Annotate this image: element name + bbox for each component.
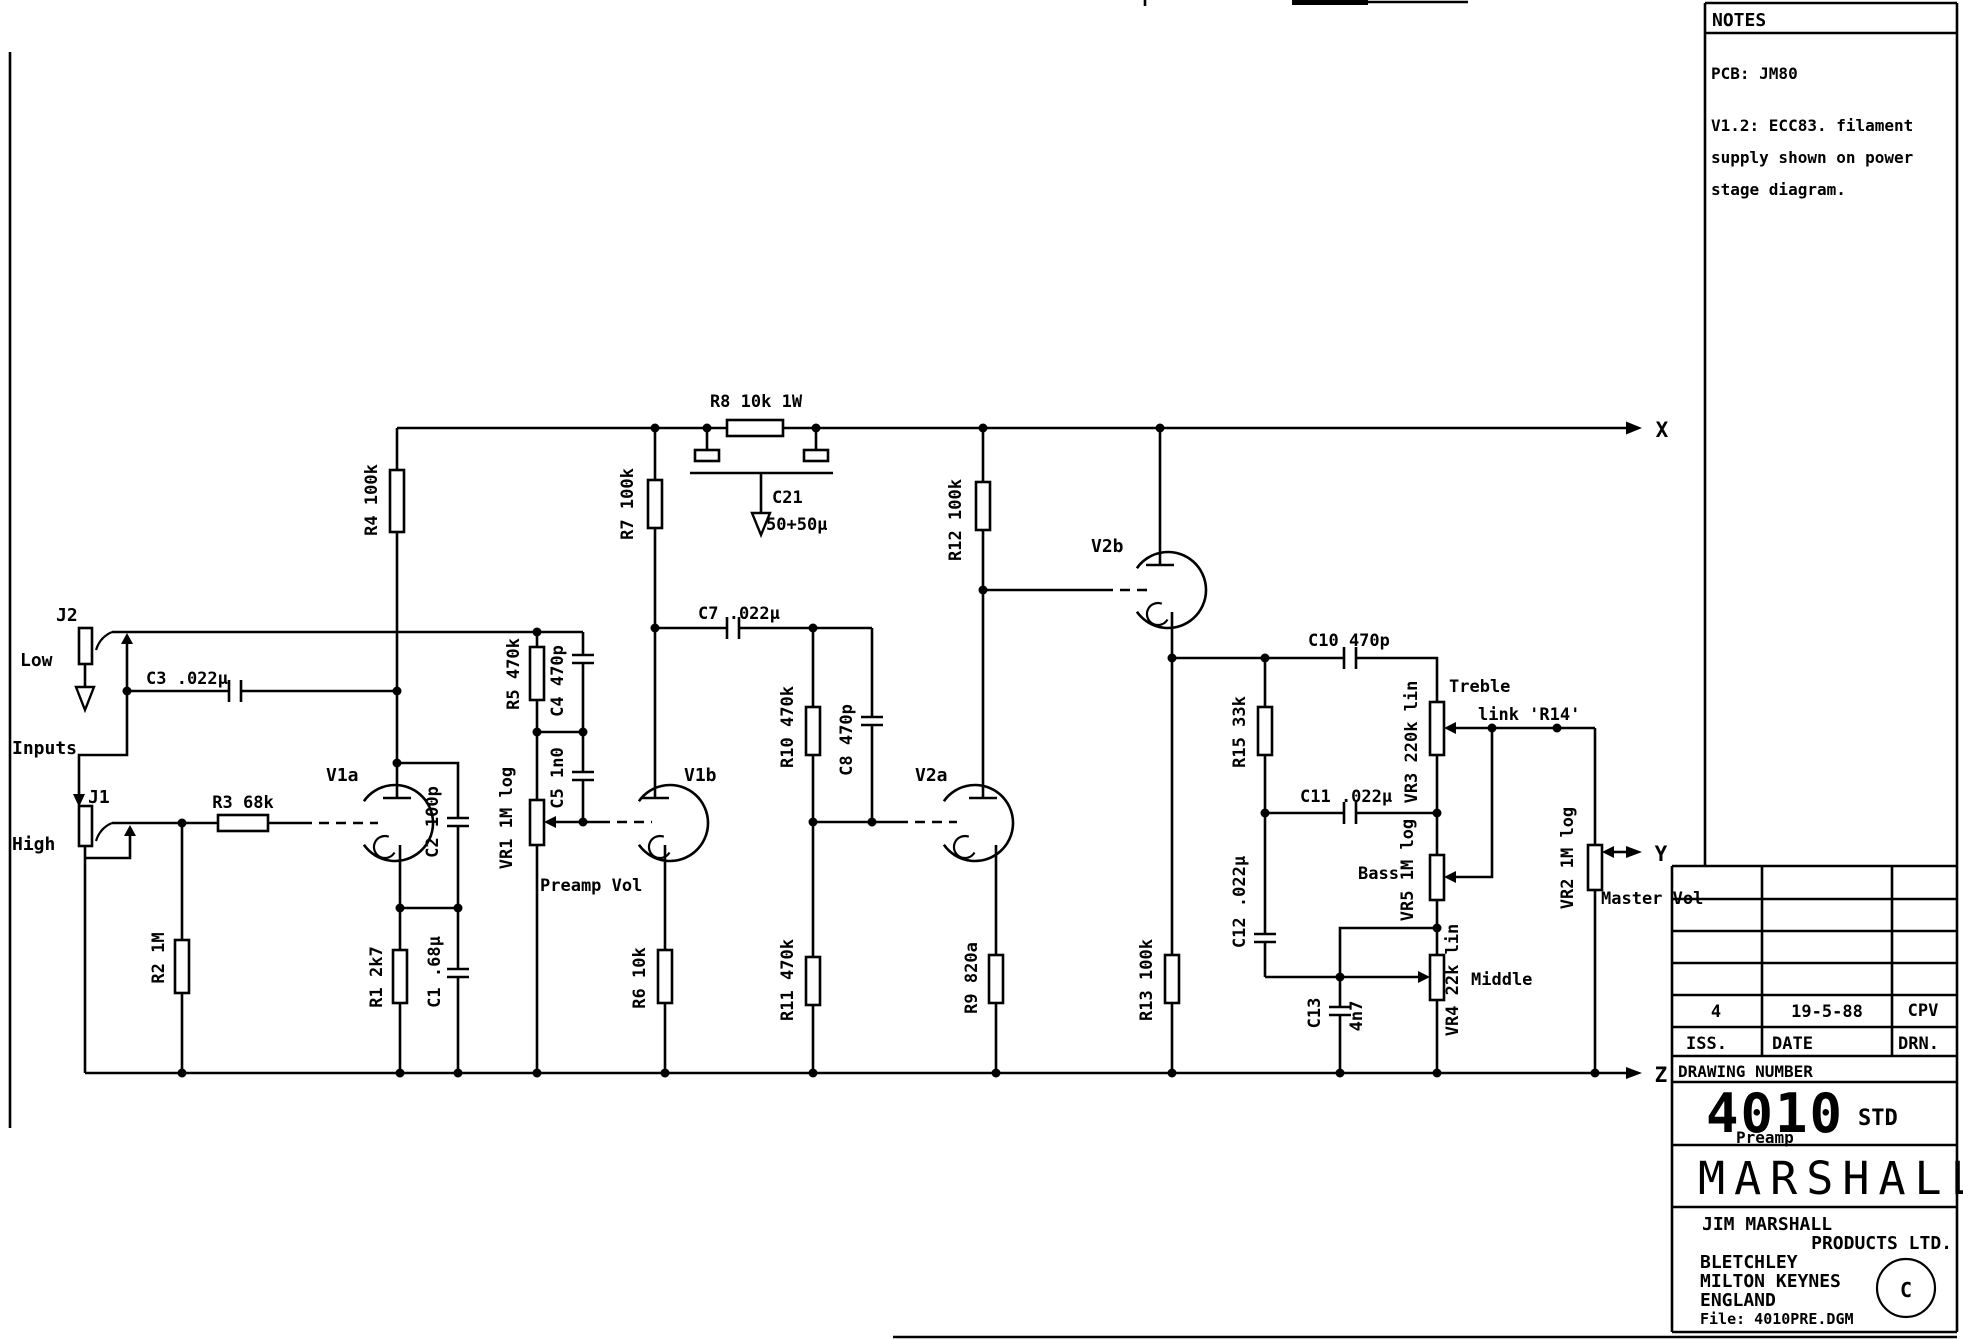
note-line: stage diagram. [1711, 180, 1846, 199]
capacitor-c3: C3 .022µ [127, 669, 397, 702]
label-r13: R13 100k [1137, 939, 1157, 1021]
cathode-icon [954, 836, 975, 858]
capacitor-c21: C21 50+50µ [690, 428, 833, 535]
label-j2: J2 [56, 605, 78, 626]
cathode-icon [1147, 603, 1168, 625]
label-r10: R10 470k [778, 686, 798, 768]
label-c3: C3 .022µ [146, 669, 228, 689]
label-c8: C8 470p [837, 704, 857, 776]
label-c12: C12 .022µ [1230, 856, 1250, 948]
resistor-r8: R8 10k 1W [710, 392, 803, 436]
label-v1a: V1a [326, 765, 359, 786]
label-c7: C7 .022µ [698, 604, 780, 624]
company-line: JIM MARSHALL [1702, 1214, 1832, 1235]
tone-stack: C10 470p R15 33k C11 .022µ VR3 220k lin … [1172, 631, 1595, 1073]
wiper-arrow-icon [1602, 846, 1614, 858]
issue-date: 19-5-88 [1791, 1002, 1863, 1022]
resistor-r2: R2 1M [149, 823, 189, 1073]
note-line: PCB: JM80 [1711, 64, 1798, 83]
date-label: DATE [1772, 1034, 1813, 1054]
label-r4: R4 100k [362, 464, 382, 536]
wiper-arrow-icon [1418, 971, 1430, 983]
drawing-variant: STD [1858, 1106, 1898, 1131]
wiper-arrow-icon [1444, 871, 1456, 883]
brand-logo: MARSHALL [1698, 1152, 1963, 1205]
cathode-icon [649, 836, 670, 858]
tube-v2a: V2a [915, 530, 1013, 955]
node-x-label: X [1656, 418, 1669, 442]
label-r1: R1 2k7 [367, 946, 387, 1007]
preamp-volume-network: R5 470k C4 470p C5 1n0 VR1 1M log Preamp… [497, 632, 652, 1073]
label-v2b: V2b [1091, 536, 1124, 557]
label-link-r14: link 'R14' [1478, 705, 1580, 725]
label-bass: Bass [1358, 864, 1399, 884]
drawing-number-label: DRAWING NUMBER [1678, 1062, 1813, 1081]
ground-rail: Z [85, 1063, 1667, 1087]
iss-label: ISS. [1686, 1034, 1727, 1054]
label-c11: C11 .022µ [1300, 787, 1392, 807]
switch-contact-icon [124, 825, 136, 836]
label-master-vol: Master Vol [1601, 889, 1703, 909]
ht-rail: X [397, 418, 1669, 442]
ground-arrow-icon [76, 687, 94, 710]
company-line: MILTON KEYNES [1700, 1271, 1841, 1292]
x-arrow-icon [1626, 422, 1642, 435]
label-preamp-vol: Preamp Vol [540, 876, 642, 896]
label-low: Low [20, 650, 53, 671]
company-line: PRODUCTS LTD. [1811, 1233, 1952, 1254]
resistor-r3: R3 68k [212, 793, 378, 831]
label-c13: C13 [1305, 998, 1325, 1029]
v1a-cathode-network: R1 2k7 C1 .68µ C2 100p [367, 763, 469, 1073]
company-line: BLETCHLEY [1700, 1252, 1798, 1273]
notes-title: NOTES [1712, 10, 1766, 31]
switch-contact-icon [121, 633, 133, 644]
label-middle: Middle [1471, 970, 1532, 990]
label-r5: R5 470k [504, 638, 524, 710]
input-jack-j1: J1 High [12, 787, 218, 1073]
label-r9: R9 820a [962, 942, 982, 1014]
label-r8: R8 10k 1W [710, 392, 803, 412]
node-z-label: Z [1655, 1063, 1668, 1087]
label-v2a: V2a [915, 765, 948, 786]
note-line: supply shown on power [1711, 148, 1913, 167]
label-vr3: VR3 220k lin [1402, 681, 1422, 804]
z-arrow-icon [1626, 1067, 1642, 1079]
label-r15: R15 33k [1230, 696, 1250, 768]
company-address-block: JIM MARSHALL PRODUCTS LTD. BLETCHLEY MIL… [1672, 1214, 1957, 1332]
label-r11: R11 470k [778, 939, 798, 1021]
label-r2: R2 1M [149, 932, 169, 983]
resistor-r6: R6 10k [630, 947, 672, 1073]
label-treble: Treble [1449, 677, 1510, 697]
cropped-text-fragment [1292, 0, 1368, 5]
tube-v1a: V1a [326, 532, 433, 908]
title-block: 4 19-5-88 CPV ISS. DATE DRN. DRAWING NUM… [1672, 866, 1963, 1332]
label-r3: R3 68k [212, 793, 273, 813]
junction-dots [123, 424, 1600, 1078]
label-c1: C1 .68µ [425, 936, 445, 1008]
label-c2: C2 100p [423, 786, 443, 858]
label-vr5: VR5 1M log [1398, 819, 1418, 921]
tube-v2b: V2b [1091, 428, 1206, 658]
drawn-by: CPV [1908, 1001, 1939, 1021]
cathode-icon [374, 836, 395, 858]
label-r12: R12 100k [946, 479, 966, 561]
copyright-letter: C [1900, 1278, 1912, 1302]
resistor-r9: R9 820a [962, 942, 1003, 1073]
resistor-r4: R4 100k [362, 428, 404, 536]
input-jack-j2: J2 Low [20, 605, 583, 710]
label-r7: R7 100k [618, 468, 638, 540]
value-c13: 4n7 [1347, 1001, 1367, 1032]
label-vr1: VR1 1M log [497, 767, 517, 869]
value-c21: 50+50µ [766, 515, 827, 535]
schematic-page: NOTES PCB: JM80 V1.2: ECC83. filament su… [0, 0, 1963, 1340]
tube-v1b: V1b [639, 528, 717, 950]
master-volume: Y VR2 1M log Master Vol [1558, 728, 1703, 1073]
label-c10: C10 470p [1308, 631, 1390, 651]
resistor-r13: R13 100k [1137, 658, 1179, 1073]
label-j1: J1 [88, 787, 110, 808]
drn-label: DRN. [1898, 1034, 1939, 1054]
label-high: High [12, 834, 55, 855]
company-line: ENGLAND [1700, 1290, 1776, 1311]
wiper-arrow-icon [1444, 722, 1456, 734]
label-vr2: VR2 1M log [1558, 807, 1578, 909]
note-line: V1.2: ECC83. filament [1711, 116, 1913, 135]
label-c4: C4 470p [548, 645, 568, 717]
wiper-arrow-icon [544, 816, 556, 828]
drawing-number-block: DRAWING NUMBER 4010 STD Preamp MARSHALL [1672, 1062, 1963, 1207]
label-c21: C21 [772, 488, 803, 508]
issue-number: 4 [1711, 1002, 1721, 1022]
label-r6: R6 10k [630, 947, 650, 1008]
label-v1b: V1b [684, 765, 717, 786]
resistor-r7: R7 100k [618, 428, 662, 540]
node-y-label: Y [1655, 842, 1668, 866]
interstage-network: C7 .022µ R10 470k C8 470p R11 470k [655, 604, 957, 1073]
y-arrow-icon [1626, 846, 1642, 858]
label-vr4: VR4 22k lin [1443, 924, 1463, 1037]
file-name: File: 4010PRE.DGM [1700, 1310, 1854, 1328]
label-c5: C5 1n0 [548, 747, 568, 808]
label-inputs: Inputs [12, 738, 77, 759]
